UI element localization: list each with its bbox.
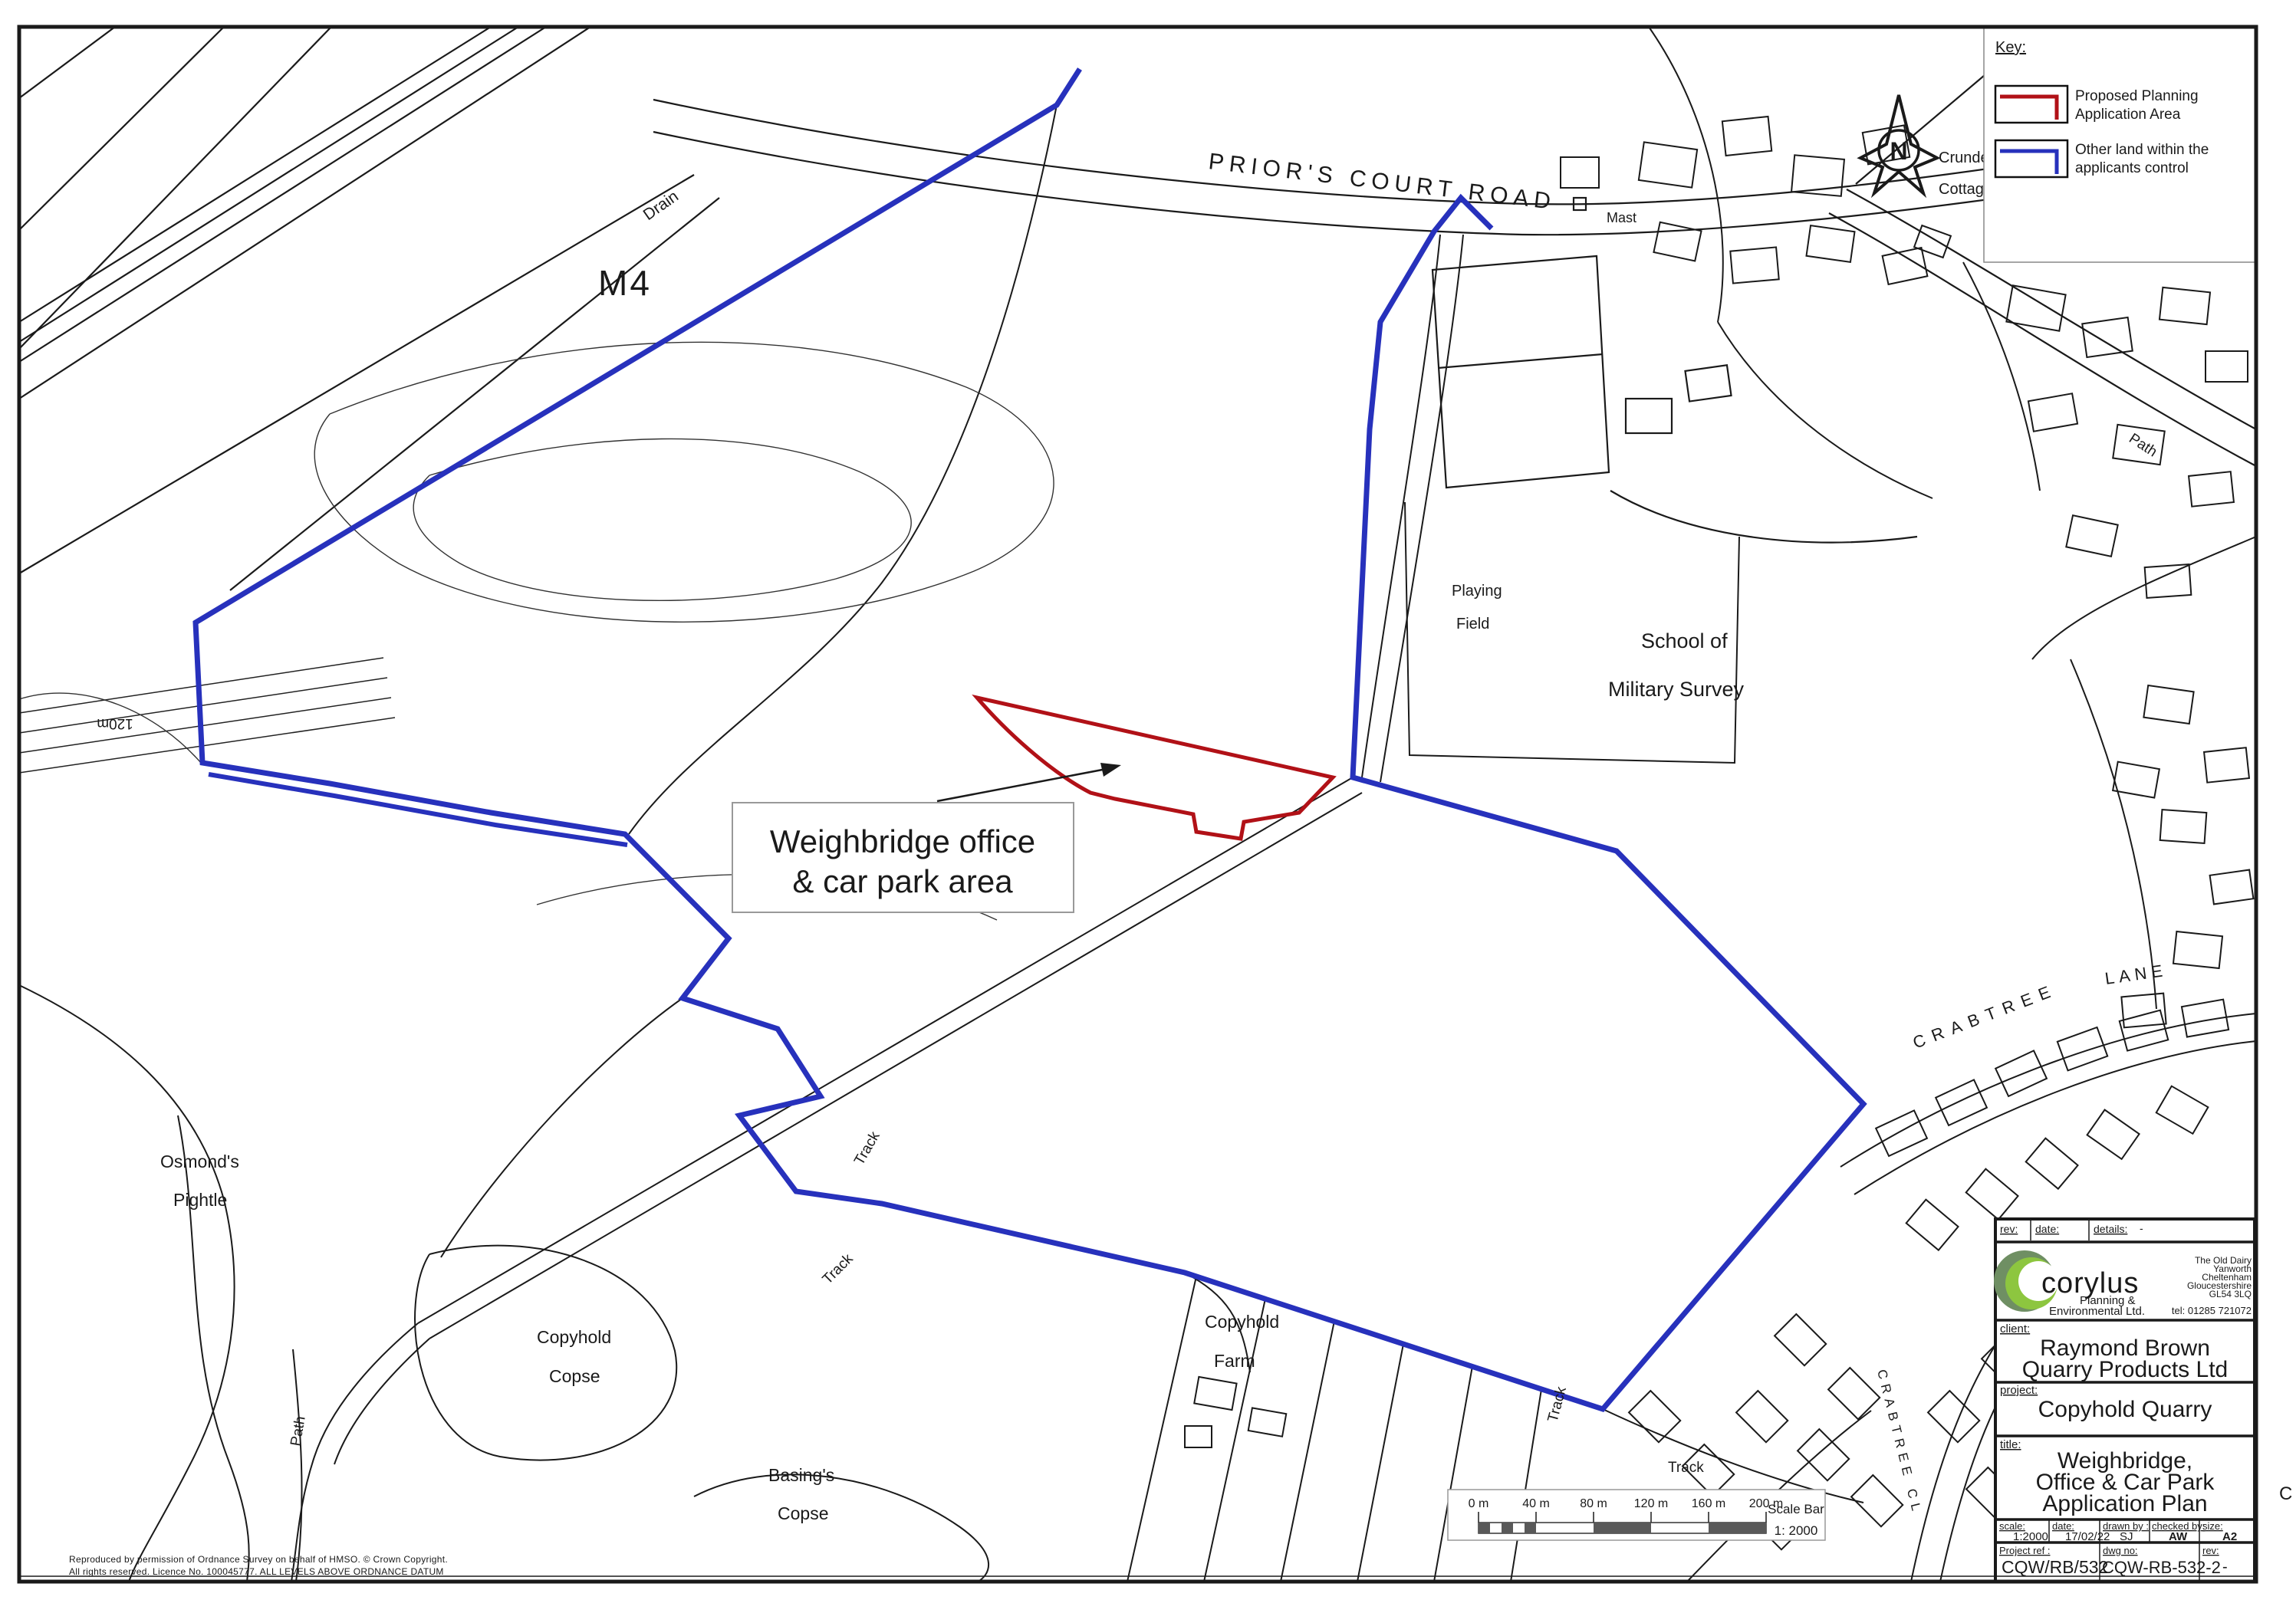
rev-label: rev:	[2202, 1545, 2219, 1556]
title-label: title:	[2000, 1438, 2021, 1451]
drawing-title-line3: Application Plan	[2042, 1491, 2207, 1516]
priors-court-road-label: PRIOR'S COURT ROAD	[1207, 149, 1557, 215]
legend-heading: Key:	[1995, 39, 2026, 56]
dwg-no-label: dwg no:	[2103, 1545, 2138, 1556]
other-land-boundary	[196, 69, 1863, 1409]
track-label-4: Track	[1668, 1460, 1704, 1476]
track-north-lines	[1362, 235, 1463, 782]
control-boundary-neck-return	[209, 774, 627, 845]
scale-bar-ratio: 1: 2000	[1775, 1523, 1818, 1538]
drain-label: Drain	[640, 187, 682, 224]
field-label: Field	[1456, 616, 1489, 632]
application-plan-sheet: { "colors": { "application_red": "#B1111…	[0, 0, 2296, 1623]
details-header-label: details:	[2094, 1223, 2127, 1235]
annotation-line2: & car park area	[792, 863, 1013, 899]
rev-value: -	[2222, 1559, 2228, 1575]
field-boundary-lines	[441, 105, 1863, 1582]
osmonds-label: Osmond's	[160, 1152, 239, 1171]
project-ref-label: Project ref :	[1999, 1545, 2050, 1556]
copse-south-label: Copse	[778, 1503, 828, 1523]
scale-bar: 0 m 40 m 80 m 120 m 160 m 200 m Scale Ba…	[1448, 1490, 1825, 1540]
scale-tick-0: 0 m	[1469, 1497, 1489, 1510]
client-label: client:	[2000, 1322, 2030, 1336]
track-label-2: Track	[820, 1250, 857, 1287]
details-header-value: -	[2140, 1222, 2143, 1234]
annotation-arrowhead	[1100, 763, 1121, 777]
scale-tick-80: 80 m	[1580, 1497, 1607, 1510]
m4-label: M4	[598, 263, 652, 303]
weighbridge-annotation: Weighbridge office & car park area	[732, 763, 1121, 912]
school-of-military-survey-buildings	[1433, 198, 1917, 543]
path-northeast-label: Path	[2126, 431, 2159, 461]
svg-text:GL54 3LQ: GL54 3LQ	[2209, 1289, 2252, 1299]
compass-n-letter: N	[1890, 137, 1907, 165]
annotation-line1: Weighbridge office	[770, 823, 1035, 859]
pightle-label: Pightle	[173, 1190, 227, 1210]
legend-item2-line2: applicants control	[2075, 160, 2189, 176]
annotation-arrow-line	[937, 768, 1110, 801]
rev-header-label: rev:	[2000, 1223, 2018, 1235]
military-survey-label: Military Survey	[1608, 678, 1745, 701]
copyright-note: Reproduced by permission of Ordnance Sur…	[69, 1554, 448, 1577]
copse-west-label: Copse	[549, 1366, 600, 1386]
farm-label: Farm	[1214, 1351, 1255, 1371]
legend-item1-line2: Application Area	[2075, 107, 2181, 123]
motorway-m4-lines	[19, 27, 719, 590]
copyright-line2: All rights reserved. Licence No. 1000457…	[69, 1566, 444, 1577]
date-header-label: date:	[2035, 1223, 2059, 1235]
project-label: project:	[2000, 1384, 2038, 1397]
legend-item1-line1: Proposed Planning	[2075, 88, 2199, 104]
scale-bar-title: Scale Bar	[1768, 1502, 1824, 1516]
scale-tick-120: 120 m	[1634, 1497, 1668, 1510]
legend-item2-line1: Other land within the	[2075, 142, 2209, 158]
client-name-line2: Quarry Products Ltd	[2022, 1357, 2228, 1382]
contour-120m-label: 120m	[97, 715, 133, 731]
margin-mark: C	[2279, 1483, 2292, 1504]
scale-tick-160: 160 m	[1692, 1497, 1725, 1510]
crabtree-label: CRABTREE	[1910, 980, 2060, 1053]
size-field-label: size:	[2202, 1520, 2223, 1532]
title-block: rev: date: details: - corylus Planning &…	[1994, 1219, 2255, 1582]
playing-label: Playing	[1452, 583, 1502, 600]
firm-tagline2: Environmental Ltd.	[2049, 1305, 2145, 1318]
control-boundary-main	[196, 69, 1863, 1409]
crabtree-close-label: CRABTREE CL	[1874, 1368, 1925, 1517]
firm-tel: tel: 01285 721072	[2172, 1305, 2252, 1316]
copyhold-farm-label: Copyhold	[1205, 1312, 1279, 1332]
map-place-labels: M4 PRIOR'S COURT ROAD Drain Mast Crundel…	[97, 149, 2168, 1523]
mast-label: Mast	[1607, 210, 1636, 225]
track-label-1: Track	[851, 1129, 883, 1168]
basings-label: Basing's	[768, 1465, 834, 1485]
copyhold-copse-label: Copyhold	[537, 1327, 611, 1347]
map-canvas: M4 PRIOR'S COURT ROAD Drain Mast Crundel…	[0, 0, 2296, 1623]
lane-label: LANE	[2104, 961, 2168, 988]
school-of-label: School of	[1641, 629, 1728, 652]
legend-panel: Key: Proposed Planning Application Area …	[1984, 27, 2256, 262]
embankment-hatch-lines	[19, 658, 395, 773]
north-arrow: N	[1860, 95, 1937, 193]
project-ref-value: CQW/RB/532	[2002, 1557, 2108, 1577]
scale-tick-40: 40 m	[1522, 1497, 1550, 1510]
project-name: Copyhold Quarry	[2038, 1397, 2212, 1422]
dwg-no-value: CQW-RB-532-2	[2102, 1558, 2221, 1577]
path-southwest-label: Path	[288, 1415, 308, 1447]
copyright-line1: Reproduced by permission of Ordnance Sur…	[69, 1554, 448, 1565]
